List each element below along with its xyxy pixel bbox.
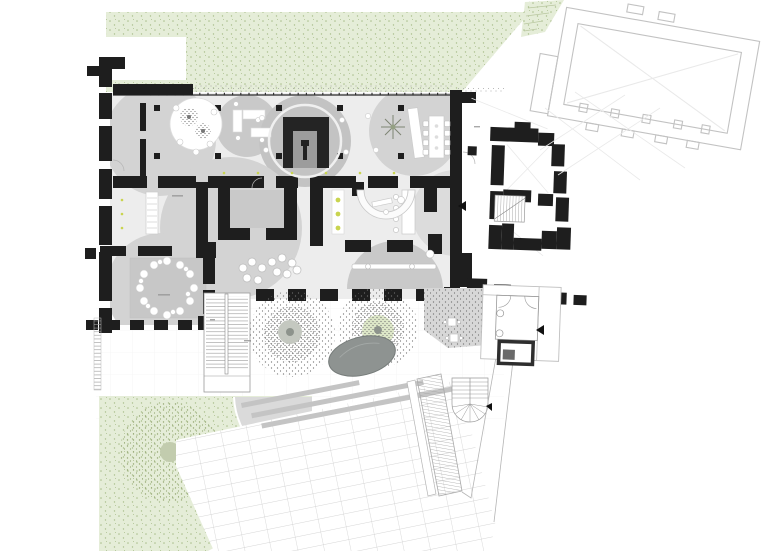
plaza-tree-1: [249, 291, 335, 377]
west-edge-hatch: [94, 318, 101, 390]
spiral-stair-symbol: [452, 378, 488, 422]
kitchen-strip: [146, 192, 158, 234]
room2-gray-floor: [230, 190, 284, 228]
light-corridor: [332, 190, 344, 234]
grand-stair: [204, 293, 250, 392]
plan-svg: [0, 0, 780, 551]
wing-stair-symbol: [494, 195, 525, 222]
south-annex: [480, 285, 561, 366]
floor-plan: [0, 0, 780, 551]
